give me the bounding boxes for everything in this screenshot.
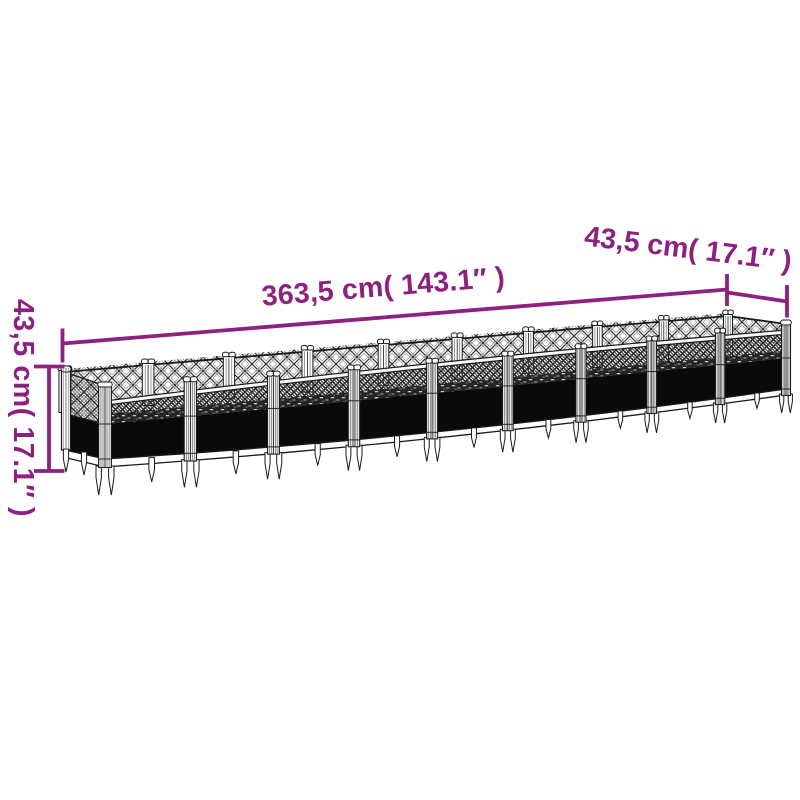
svg-text:43,5 cm( 17.1″ ): 43,5 cm( 17.1″ ) [7, 299, 39, 517]
